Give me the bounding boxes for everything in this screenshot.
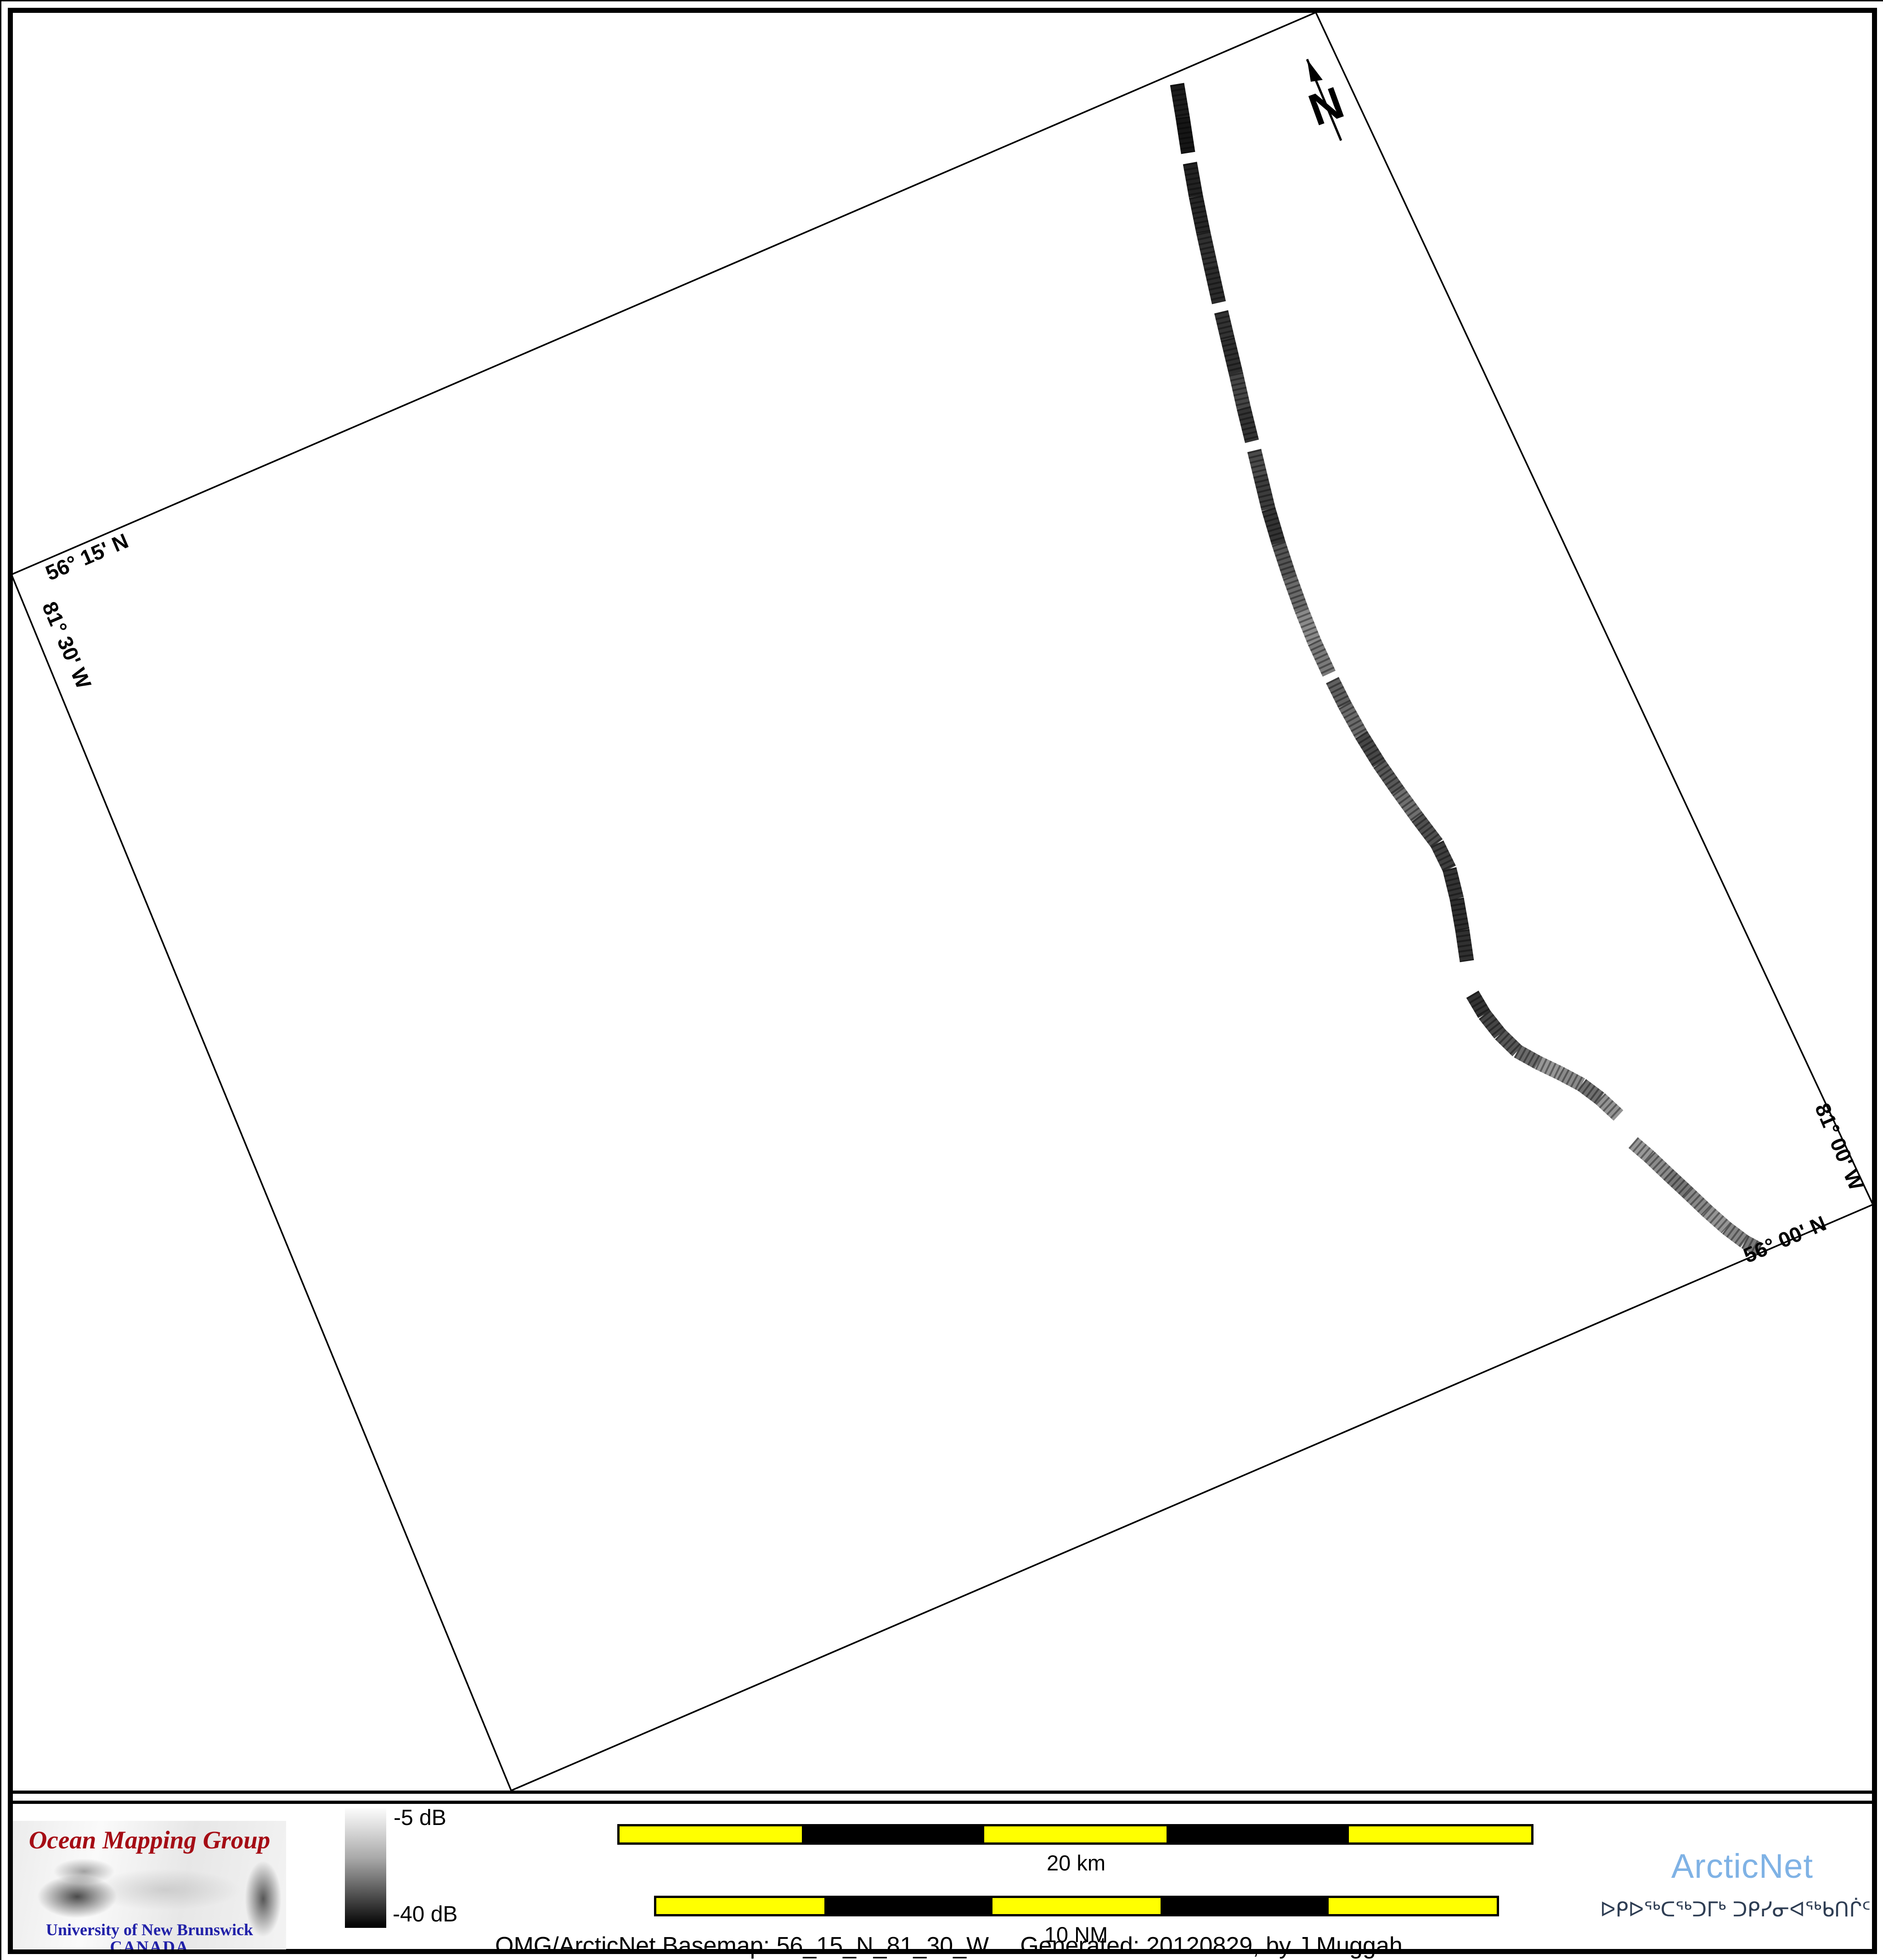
longitude-label-left: 81° 30' W (38, 598, 96, 692)
caption-basemap-id: OMG/ArcticNet Basemap: 56_15_N_81_30_W (495, 1932, 989, 1959)
basemap-caption: OMG/ArcticNet Basemap: 56_15_N_81_30_WGe… (495, 1932, 1403, 1960)
scalebar-segment (620, 1826, 802, 1842)
scalebar-kilometres (617, 1824, 1533, 1845)
omg-logo-title: Ocean Mapping Group (13, 1825, 286, 1854)
north-arrow-head (1307, 59, 1323, 82)
scalebar-segment (1167, 1826, 1349, 1842)
map-canvas: N 56° 15' N 81° 30' W 81° 00' W 56° 00' … (1, 1, 1883, 1960)
omg-logo-university: University of New Brunswick (13, 1920, 286, 1939)
scalebar-segment (802, 1826, 984, 1842)
scalebar-km-label: 20 km (980, 1850, 1173, 1876)
scalebar-segment (1161, 1898, 1329, 1914)
scalebar-nautical-miles (654, 1896, 1499, 1916)
scalebar-segment (656, 1898, 824, 1914)
backscatter-colorbar (345, 1808, 386, 1928)
caption-generated: Generated: 20120829, by J.Muggah (1020, 1932, 1403, 1959)
basemap-page: N 56° 15' N 81° 30' W 81° 00' W 56° 00' … (0, 0, 1883, 1960)
colorbar-min-label: -40 dB (393, 1902, 457, 1927)
arcticnet-inuktitut-text: ᐅᑭᐅᖅᑕᖅᑐᒥᒃ ᑐᑭᓯᓂᐊᖅᑲᑎᒌᑦ (1595, 1898, 1871, 1921)
footer-separator-line-2 (13, 1801, 1873, 1804)
arcticnet-logo: ArcticNet (1563, 1847, 1813, 1886)
omg-logo-country: CANADA (13, 1937, 286, 1949)
footer-separator-line-1 (13, 1791, 1873, 1794)
scalebar-segment (824, 1898, 992, 1914)
longitude-label-right: 81° 00' W (1810, 1099, 1869, 1194)
scalebar-segment (1349, 1826, 1531, 1842)
omg-unb-logo: Ocean Mapping Group University of New Br… (13, 1821, 286, 1949)
scalebar-segment (984, 1826, 1167, 1842)
latitude-label-top-left: 56° 15' N (42, 529, 131, 585)
scalebar-segment (992, 1898, 1161, 1914)
colorbar-max-label: -5 dB (394, 1805, 446, 1830)
scalebar-segment (1329, 1898, 1497, 1914)
sonar-track (1177, 84, 1759, 1250)
north-arrow-letter: N (1302, 77, 1350, 135)
map-boundary (11, 12, 1873, 1791)
